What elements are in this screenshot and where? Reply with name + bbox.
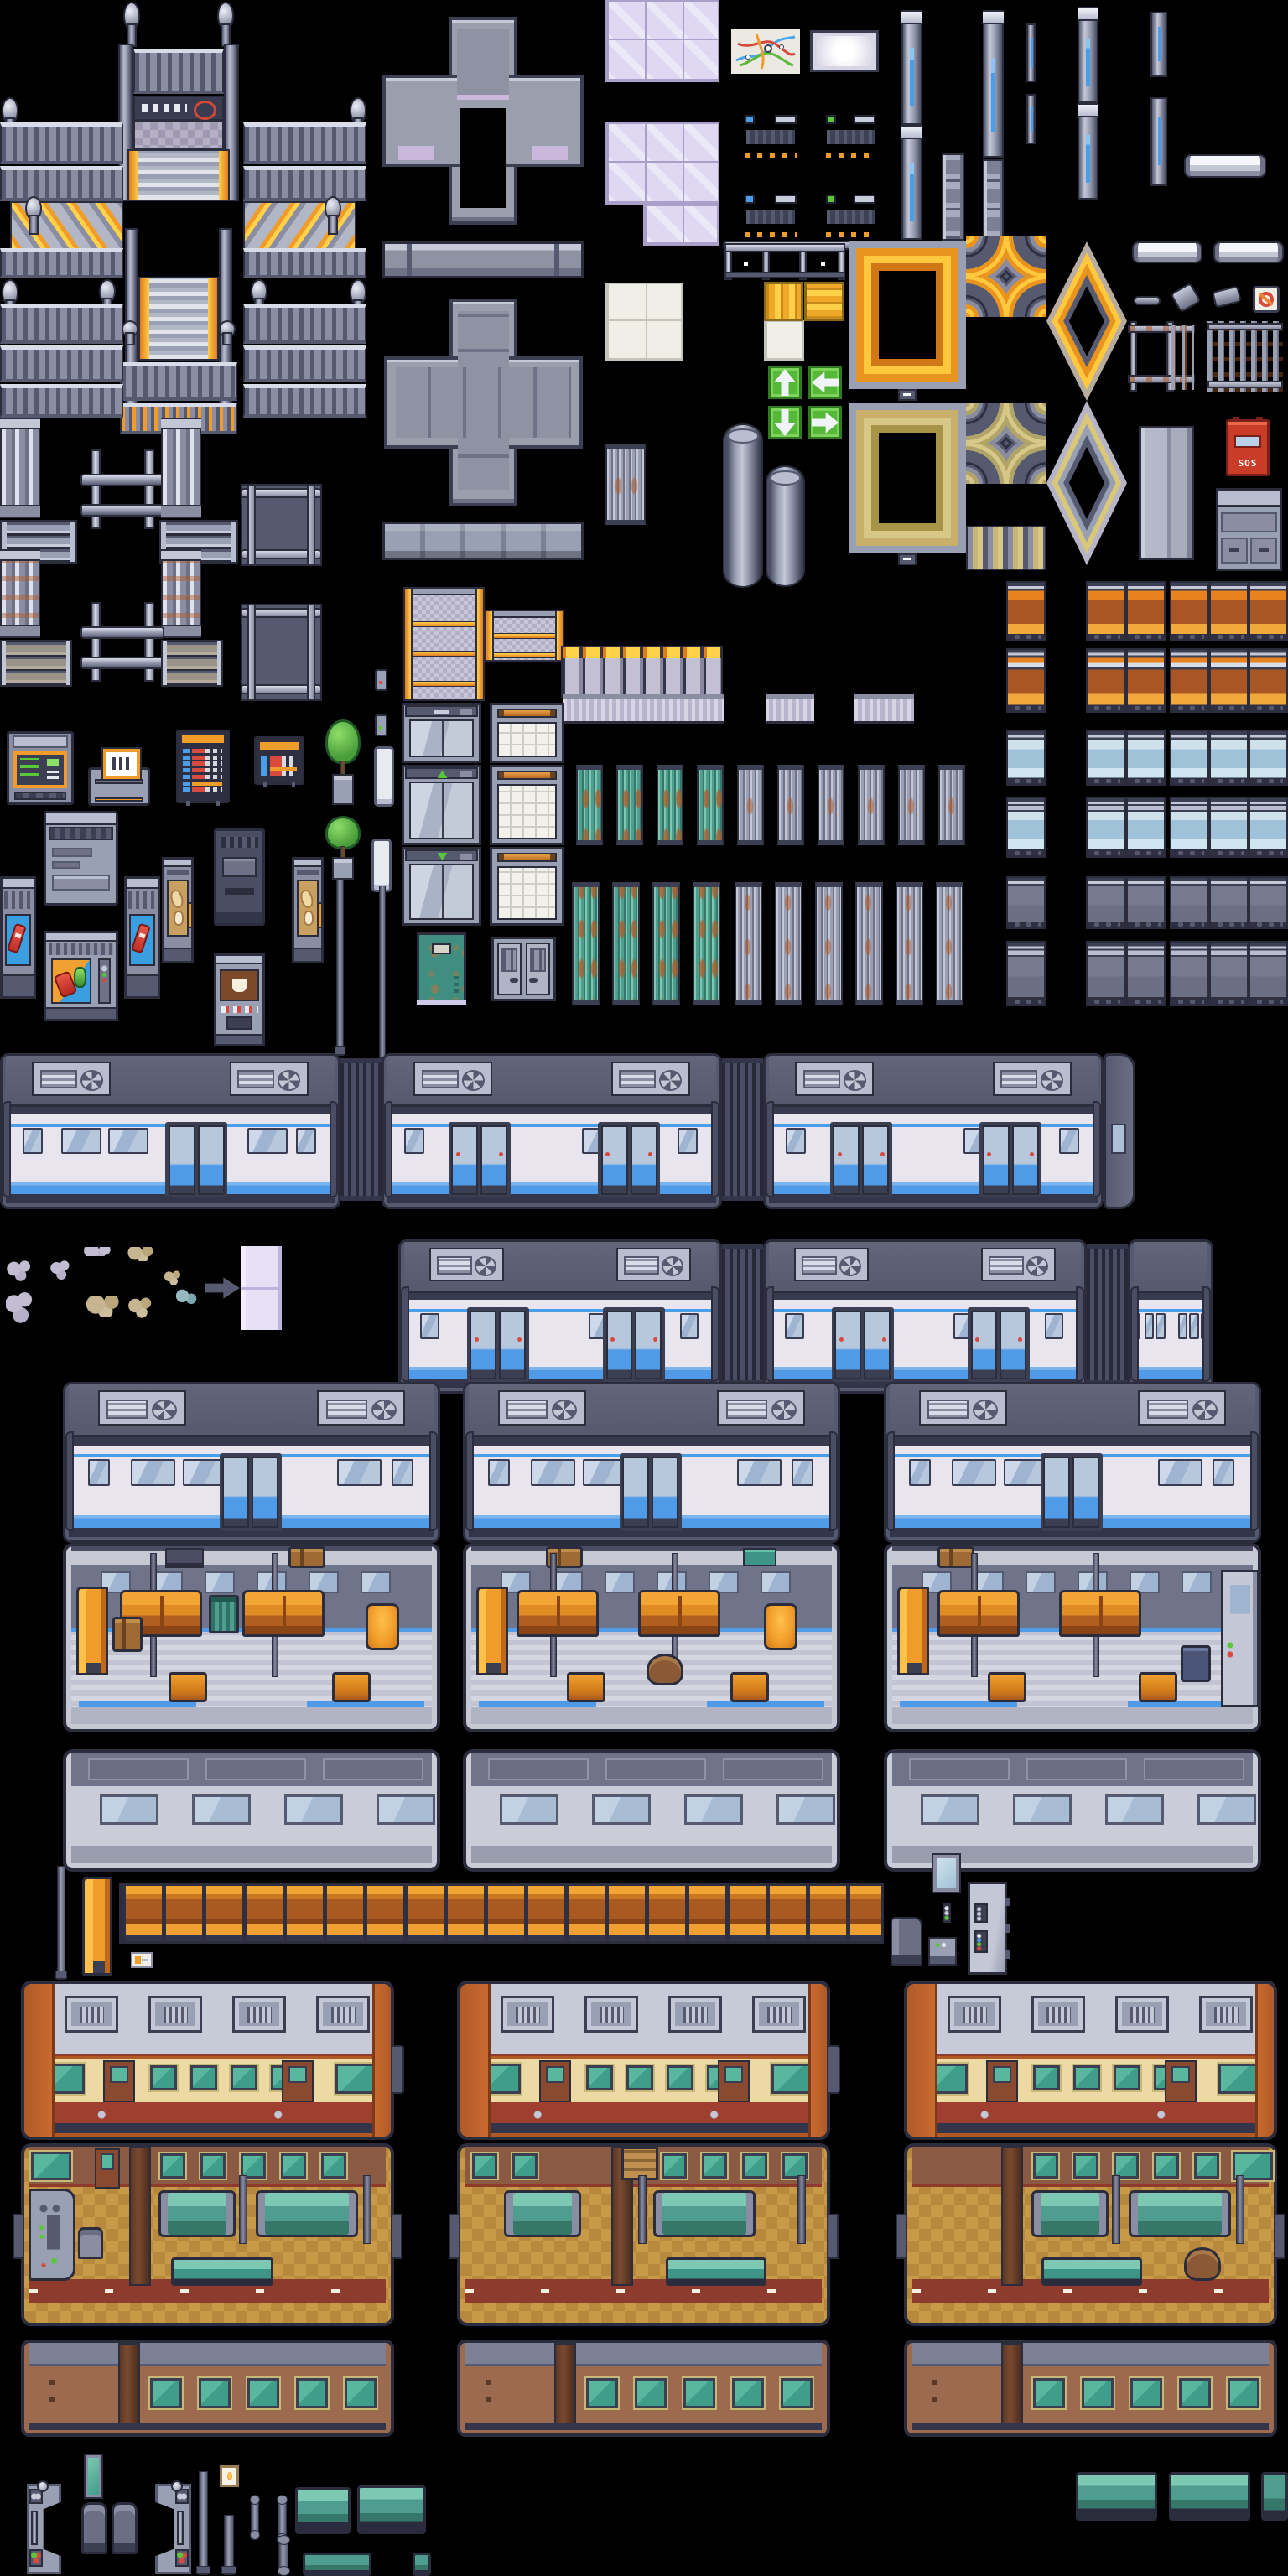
train-end (465, 1431, 474, 1531)
gate-dot (821, 262, 825, 266)
wall-panel-section (1006, 941, 1046, 1006)
vintage-ww (31, 2152, 71, 2180)
vintage-car-backwall (457, 2340, 830, 2437)
train-window (1213, 1459, 1235, 1486)
interior-cd (1221, 1570, 1259, 1707)
interior-cf (112, 1617, 143, 1652)
corner-pattern-tile (966, 402, 1046, 484)
train-shell (463, 1382, 840, 1543)
tree-pedestal (332, 857, 355, 880)
door-button (880, 1152, 885, 1156)
metal-barrier-gate (724, 243, 845, 280)
escalator-steps (127, 149, 230, 201)
interior-window (361, 1571, 391, 1593)
escalator-shaft-frame (849, 241, 966, 389)
cabinet-drawer (1221, 538, 1248, 564)
vintage-car-backwall (21, 2340, 394, 2437)
train-door (968, 1307, 1030, 1382)
tileset-spritesheet: SOS (0, 0, 1288, 2576)
pillar-segment (1078, 103, 1098, 200)
floor-debris-decal (81, 1247, 115, 1256)
machine-poster (167, 880, 190, 937)
driver-seat (81, 2502, 107, 2554)
interior-co (937, 1546, 974, 1568)
wall-panel (1144, 1758, 1244, 1780)
train-end (766, 1286, 774, 1382)
train-door-leaf (499, 1311, 526, 1379)
vintage-pl (1112, 2175, 1120, 2244)
steel-girder-vertical (161, 549, 201, 638)
teal-window (86, 2455, 101, 2497)
wall-panel (909, 1758, 1010, 1780)
train-window (792, 1459, 814, 1486)
safety-fence-far (766, 694, 814, 724)
door-leaf (526, 943, 551, 995)
train-end (65, 1431, 74, 1531)
teal-bench (357, 2485, 426, 2534)
wall-panel-section (1170, 581, 1209, 641)
frame-post (91, 602, 101, 682)
train-end (3, 1101, 11, 1197)
metro-train-car (382, 1053, 722, 1209)
station-wall-panel (1006, 797, 1046, 858)
pole (199, 2471, 208, 2575)
door-gap (442, 721, 444, 756)
pole (57, 1866, 65, 1980)
train-window (678, 1128, 698, 1154)
cabinet-panel (1221, 512, 1277, 532)
printer-stripe (95, 797, 143, 802)
sos-screen (1234, 435, 1261, 448)
door-button (1018, 1337, 1022, 1342)
vintage-bf (1041, 2257, 1142, 2286)
vintage-door (282, 2060, 314, 2102)
gate-dots (745, 232, 797, 237)
train-interior-shell (463, 1543, 840, 1732)
train-door-leaf (198, 1125, 225, 1195)
corrugated-shutter (697, 765, 724, 845)
row-dash (183, 775, 190, 779)
train-door-leaf (971, 1311, 998, 1379)
vintage-vw (662, 2153, 687, 2179)
train-door (449, 1122, 511, 1197)
metro-train-car (763, 1239, 1087, 1394)
curtain-bar (497, 771, 557, 780)
gate-display (775, 115, 797, 124)
machine-lid (46, 813, 116, 825)
vent-ribs (1130, 2007, 1155, 2023)
luggage-rail (71, 1546, 432, 1551)
console-lever (31, 2511, 38, 2545)
train-door-leaf (1043, 1457, 1070, 1529)
buttons-row (221, 1006, 258, 1013)
vintage-bb (504, 2190, 581, 2237)
door-handle (510, 978, 518, 983)
vent-ribs (164, 2007, 188, 2023)
board-header (182, 735, 224, 743)
pole (336, 880, 344, 1056)
station-wall-panel (1170, 941, 1288, 1006)
elevator-doors (409, 864, 474, 920)
train-end (429, 1431, 438, 1531)
green-arrow-tile (808, 366, 842, 399)
vintage-window (626, 2065, 653, 2090)
board-header (260, 742, 299, 750)
vintage-backwall-window (635, 2378, 667, 2408)
interior-sf (1139, 1672, 1177, 1702)
door-button (475, 1337, 479, 1342)
train-end (1093, 1101, 1101, 1197)
interior-sf (332, 1672, 371, 1702)
gate-vents (746, 130, 796, 144)
tile-quadrant (966, 444, 1006, 485)
gate-display (854, 115, 875, 124)
food-item (299, 888, 314, 909)
train-eave (769, 1107, 1098, 1114)
atm-slot (225, 888, 254, 895)
vintage-vw (1033, 2153, 1058, 2179)
wall-panel-section (1170, 876, 1209, 929)
potted-tree (325, 719, 361, 805)
train-window (1059, 1128, 1079, 1154)
door-button (882, 1337, 886, 1342)
interior-sf (567, 1672, 605, 1702)
frame-rail (80, 626, 164, 639)
corrugated-shutter (898, 765, 925, 845)
seat-back-row (119, 1883, 884, 1944)
steel-frame (80, 449, 164, 529)
elevator-panel (434, 710, 449, 714)
machine-panel (52, 875, 111, 891)
service-machine (44, 811, 118, 906)
pillar-segment (1078, 7, 1098, 103)
train-connector (722, 1244, 763, 1385)
roof-vent (752, 1996, 806, 2033)
side-tab (1005, 1924, 1010, 1933)
pillar-blue-light (1078, 7, 1098, 200)
wall-panel-section (1249, 648, 1288, 713)
wall-panel-section (1126, 648, 1166, 713)
wall-panel-section (1249, 876, 1288, 929)
interior-bag (647, 1654, 683, 1685)
train-window (952, 1459, 996, 1486)
direction-arrow (205, 1275, 240, 1301)
interior-lower-band (71, 1707, 432, 1724)
door-bars (530, 948, 547, 972)
vintage-door-pillar (554, 2343, 576, 2430)
pillar-light-strip (991, 58, 995, 132)
interior-sb1 (764, 1603, 797, 1650)
train-ac-unit (794, 1248, 869, 1281)
vintage-shell (21, 1981, 394, 2140)
roof-vent (316, 1996, 370, 2033)
round-column (766, 465, 805, 587)
vintage-door (986, 2060, 1018, 2102)
backwall-window (500, 1794, 558, 1825)
train-end (1250, 1431, 1259, 1531)
train-window (420, 1313, 439, 1338)
train-car-backwall (63, 1749, 440, 1872)
curtain-bar (497, 853, 557, 862)
wall-panel-section (1006, 797, 1046, 858)
frame-rail (80, 504, 164, 517)
fence-top-rail (485, 610, 564, 618)
roof-vent (65, 1996, 118, 2033)
machine-top (216, 956, 262, 964)
interior-ss (476, 1587, 508, 1675)
vintage-backwall-window (781, 2378, 813, 2408)
vintage-door (718, 2060, 750, 2102)
row-white (205, 768, 222, 772)
wall-panel-section (1209, 581, 1249, 641)
backwall-roofline (465, 2343, 822, 2366)
station-wall-panel (1006, 876, 1046, 929)
backwall-window (684, 1794, 743, 1825)
platform-cross-open (382, 17, 584, 225)
train-door (165, 1122, 227, 1197)
vending-body (124, 876, 160, 999)
train-skirt (387, 1182, 716, 1195)
train-skirt (404, 1367, 716, 1379)
station-wall-panel (1086, 797, 1166, 858)
pipe-diagonal (1212, 285, 1242, 308)
frame-tab (898, 389, 917, 401)
gate-dot (744, 262, 748, 266)
row-dash (183, 782, 190, 786)
bottle (74, 967, 86, 988)
ticket-card (131, 1952, 153, 1968)
train-end-cap (1104, 1053, 1135, 1209)
driver-seat-side (891, 1917, 922, 1966)
printer-slot (95, 779, 143, 784)
wall-panel-section (1209, 648, 1249, 713)
cabinet-body (1216, 488, 1282, 571)
train-door (598, 1122, 660, 1197)
train-ac-unit (230, 1062, 309, 1096)
wall-panel-section (1126, 730, 1166, 786)
vintage-shell (904, 1981, 1277, 2140)
cross-upper-deck (457, 29, 509, 100)
wall-panel-section (1126, 941, 1166, 1006)
wall-panel-section (1086, 581, 1126, 641)
backwall-base (29, 2423, 386, 2430)
door-sill (417, 1000, 466, 1005)
roof-vent (1115, 1996, 1169, 2033)
train-underframe (387, 1194, 716, 1203)
train-window (61, 1128, 101, 1154)
train-car-backwall (884, 1749, 1261, 1872)
wall-panel-section (1086, 941, 1126, 1006)
interior-sb2 (937, 1590, 1020, 1637)
vintage-interior-shell (21, 2143, 394, 2326)
train-door-leaf (833, 1125, 860, 1195)
vintage-car-exterior (457, 1981, 830, 2140)
vintage-backwall-shell (21, 2340, 394, 2437)
train-door-leaf (601, 1125, 628, 1195)
train-end (1202, 1286, 1211, 1382)
pillar-cap (983, 12, 1004, 24)
vintage-window (1033, 2065, 1060, 2090)
door-frame (491, 937, 556, 1001)
roof-vent (148, 1996, 202, 2033)
sos-label: SOS (1228, 458, 1267, 469)
pillar-segment (983, 10, 1004, 158)
interior-sf (988, 1672, 1026, 1702)
train-skirt (1134, 1367, 1207, 1379)
train-window (337, 1459, 382, 1486)
machine-slit (167, 870, 189, 875)
train-window (1189, 1313, 1199, 1338)
handrail-pole (251, 2495, 259, 2539)
machine-base (14, 792, 66, 800)
screen-dash (47, 759, 60, 765)
side-tab (1005, 1898, 1010, 1907)
train-door (832, 1307, 894, 1382)
machine-slit (297, 870, 319, 875)
dispenser (226, 1016, 252, 1030)
gate-rail (724, 243, 845, 252)
console-lever (177, 2511, 184, 2545)
vent-ribs (683, 2007, 708, 2023)
steel-girder-vertical (0, 549, 40, 638)
train-window (737, 1459, 782, 1486)
roof-vent (501, 1996, 554, 2033)
train-window (1156, 1313, 1166, 1338)
metro-train-car (763, 1053, 1104, 1209)
door-button (499, 1152, 503, 1156)
side-tab (1005, 1950, 1010, 1960)
wall-panel-section (1086, 797, 1126, 858)
vending-base (3, 974, 34, 996)
vintage-backwall-window (1082, 2378, 1114, 2408)
floor-debris-decal (50, 1259, 70, 1280)
train-shell (398, 1239, 722, 1394)
train-window (247, 1128, 288, 1154)
wall-panel (323, 1758, 423, 1780)
station-wall-panel (1006, 581, 1046, 641)
console-pad (29, 2549, 43, 2568)
vintage-interior-shell (904, 2143, 1277, 2326)
station-wall-panel (1170, 730, 1288, 786)
cross-opening (460, 108, 506, 208)
station-wall-panel (1170, 581, 1288, 641)
green-arrow-tile (808, 406, 842, 439)
corrugated-shutter (657, 765, 683, 845)
vintage-base (914, 2123, 1267, 2133)
door-button (610, 1337, 615, 1342)
pillar-light-strip (910, 163, 914, 221)
train-door-leaf (169, 1125, 195, 1195)
wall-panel-section (1086, 730, 1126, 786)
sos-tab (1233, 417, 1239, 422)
wall-panel (605, 1758, 706, 1780)
machine-panel (13, 751, 67, 788)
striped-tile-part (966, 526, 1046, 570)
gate-rail (724, 272, 845, 278)
corrugated-shutter (737, 765, 764, 845)
button-panel (974, 1903, 988, 1923)
train-body-panel (769, 1114, 1098, 1203)
train-door (220, 1453, 282, 1531)
yellow-striped-tile (804, 282, 844, 321)
gate-display (854, 195, 875, 204)
vintage-bb (256, 2190, 358, 2237)
train-window (488, 1459, 511, 1486)
train-shell (1128, 1239, 1213, 1394)
machine-base (294, 948, 321, 961)
vintage-end (1255, 1984, 1274, 2137)
train-end (330, 1101, 338, 1197)
train-door-leaf (1072, 1457, 1099, 1529)
rivet (486, 2397, 491, 2402)
corrugated-shutter (572, 882, 600, 1005)
train-end (711, 1286, 719, 1382)
wall-panel-section (1126, 797, 1166, 858)
train-stripe (1134, 1309, 1207, 1312)
interior-window (761, 1571, 791, 1593)
vending-fins (49, 943, 112, 955)
tile-quadrant (966, 236, 1006, 277)
tree-foliage (325, 719, 361, 764)
wall-panel-section (1086, 648, 1126, 713)
railing-ball-post (123, 2, 140, 47)
interior-lower-band (471, 1707, 832, 1724)
vintage-dp (129, 2147, 151, 2286)
departure-board (254, 736, 304, 785)
tile-quadrant (1006, 236, 1046, 277)
vending-machine-large (44, 931, 118, 1021)
vintage-backwall-window (683, 2378, 715, 2408)
train-window (392, 1459, 414, 1486)
coffee-cup (232, 979, 247, 992)
vent-ribs (80, 2007, 104, 2023)
checker-floor (133, 121, 224, 149)
vintage-door-pillar (1001, 2343, 1023, 2430)
train-shell (763, 1053, 1104, 1209)
call-button (375, 669, 387, 691)
interior-sb2 (638, 1590, 720, 1637)
door-gap (442, 865, 444, 918)
interior-lower-band (892, 1707, 1253, 1724)
row-red (192, 749, 206, 753)
interior-sb2 (517, 1590, 599, 1637)
pillar-light-strip (1086, 135, 1090, 184)
wall-panel-section (1086, 876, 1126, 929)
vintage-vw (281, 2153, 306, 2179)
train-body-panel (769, 1300, 1081, 1388)
wall-panel-section (1209, 797, 1249, 858)
vintage-backwall-window (345, 2378, 377, 2408)
train-car-exterior (884, 1382, 1261, 1543)
fence-rail (485, 652, 564, 658)
train-stripe (404, 1309, 716, 1312)
lavender-floor-tiles (605, 0, 719, 82)
vintage-wd (95, 2148, 120, 2189)
train-eave (469, 1437, 834, 1445)
vintage-end (907, 1984, 937, 2137)
steel-girder-vertical (161, 418, 201, 518)
train-shell (63, 1382, 440, 1543)
safety-fence-far (563, 694, 724, 724)
machine-base (164, 948, 191, 961)
food-item (169, 888, 184, 909)
interior-sf (169, 1672, 207, 1702)
train-door-leaf (622, 1457, 649, 1529)
vintage-pl (239, 2175, 247, 2244)
vintage-end (372, 1984, 391, 2137)
vending-fins (4, 891, 32, 909)
train-stripe (769, 1309, 1081, 1312)
